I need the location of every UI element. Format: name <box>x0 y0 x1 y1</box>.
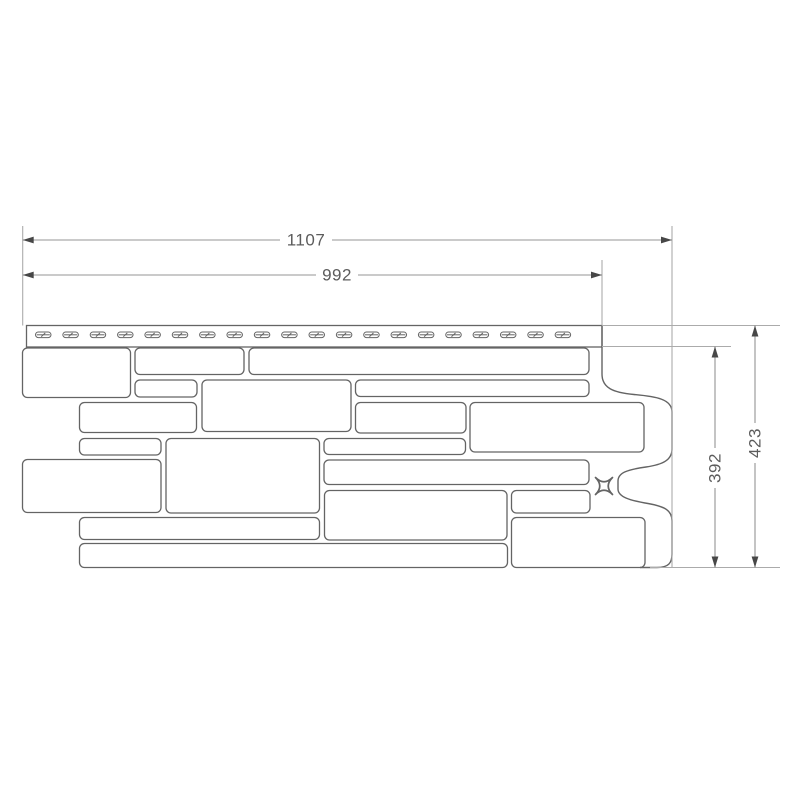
panel-group <box>23 326 673 568</box>
stone-block <box>356 380 590 397</box>
nail-slot <box>528 332 544 338</box>
nail-slot <box>418 332 434 338</box>
nail-slot <box>145 332 161 338</box>
stone-block <box>80 544 508 568</box>
nail-slot <box>473 332 489 338</box>
dimension-label-width-total: 1107 <box>287 231 326 250</box>
nail-slot <box>500 332 516 338</box>
x-mold-mark <box>596 478 613 495</box>
dimension-height-total: 423 <box>746 326 765 568</box>
dimension-label-height-total: 423 <box>746 428 765 458</box>
nail-slot <box>118 332 134 338</box>
nail-slot <box>254 332 269 338</box>
nail-slot <box>336 332 352 338</box>
stone-block <box>324 460 589 485</box>
stone-block <box>135 380 197 397</box>
nail-slot <box>282 332 298 338</box>
stone-block <box>249 348 589 375</box>
nail-slot <box>227 332 243 338</box>
nail-slot <box>309 332 325 338</box>
stone-block <box>80 403 197 433</box>
dimension-arrow <box>23 272 34 279</box>
nail-slot <box>90 332 106 338</box>
stone-block <box>325 491 508 541</box>
drawing-canvas: 1107992392423 <box>0 0 800 800</box>
dimension-arrow <box>661 237 672 244</box>
dimension-arrow <box>752 326 759 337</box>
dimension-arrow <box>712 347 719 358</box>
dimension-width-total: 1107 <box>23 231 672 250</box>
stone-block <box>324 439 466 455</box>
stone-block <box>470 403 644 453</box>
stone-block <box>202 380 351 432</box>
dimension-arrow <box>591 272 602 279</box>
stone-block <box>23 460 162 513</box>
stone-block <box>512 491 591 514</box>
stone-block <box>512 518 646 568</box>
nail-slot <box>364 332 380 338</box>
dimension-arrow <box>23 237 34 244</box>
stone-block <box>356 403 467 434</box>
nail-slot <box>391 332 407 338</box>
stone-block <box>80 439 162 456</box>
dimension-height-exposed: 392 <box>706 347 725 568</box>
dimension-arrow <box>712 557 719 568</box>
dimension-label-width-exposed: 992 <box>322 266 352 285</box>
stone-block <box>80 518 320 540</box>
stone-block <box>166 439 320 514</box>
nail-slot <box>200 332 216 338</box>
dimension-width-exposed: 992 <box>23 266 602 285</box>
nail-slot <box>172 332 188 338</box>
nail-slot <box>446 332 462 338</box>
stone-block <box>23 348 131 398</box>
dimension-label-height-exposed: 392 <box>706 453 725 483</box>
facade-panel-technical-drawing: 1107992392423 <box>0 0 800 800</box>
nail-slot <box>63 332 79 338</box>
stone-block <box>135 348 244 375</box>
nail-slot <box>36 332 52 338</box>
dimension-arrow <box>752 557 759 568</box>
nail-slot <box>555 332 571 338</box>
